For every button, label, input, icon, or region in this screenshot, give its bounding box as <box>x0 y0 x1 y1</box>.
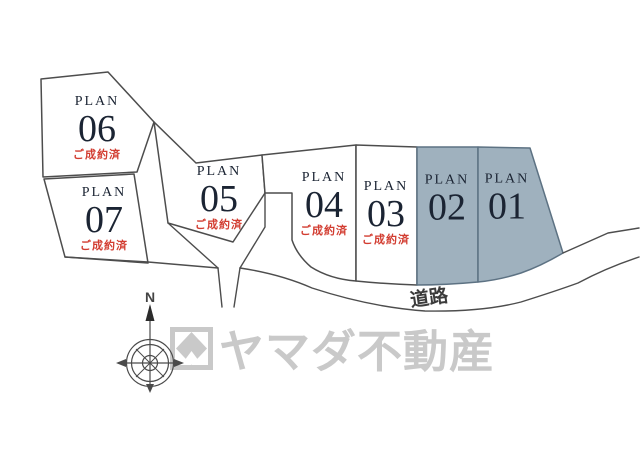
road-label: 道路 <box>409 283 451 311</box>
plots-layer <box>41 72 563 285</box>
compass-south-arrow-icon <box>146 384 154 393</box>
plot-05-shape <box>154 122 265 242</box>
road-stub-left-edge <box>218 268 222 307</box>
compass-north-label: N <box>145 289 155 305</box>
plot-04-shape <box>262 145 356 281</box>
lot-map-drawing: ヤマダ不動産 道路 N <box>0 0 640 461</box>
compass-west-arrow-icon <box>116 359 126 367</box>
lot-map-canvas: ヤマダ不動産 道路 N <box>0 0 640 461</box>
watermark-text: ヤマダ不動産 <box>219 326 495 377</box>
plot-02-shape <box>417 147 478 285</box>
plot-03-shape <box>356 145 417 285</box>
watermark-logo: ヤマダ不動産 <box>173 326 496 377</box>
plot-07-shape <box>44 174 148 263</box>
plot-01-shape <box>478 147 563 282</box>
plot-06-shape <box>41 72 154 177</box>
compass-north-arrow-icon <box>146 304 155 321</box>
road-upper-edge-right <box>563 228 639 253</box>
road-stub-right-edge <box>234 268 240 307</box>
